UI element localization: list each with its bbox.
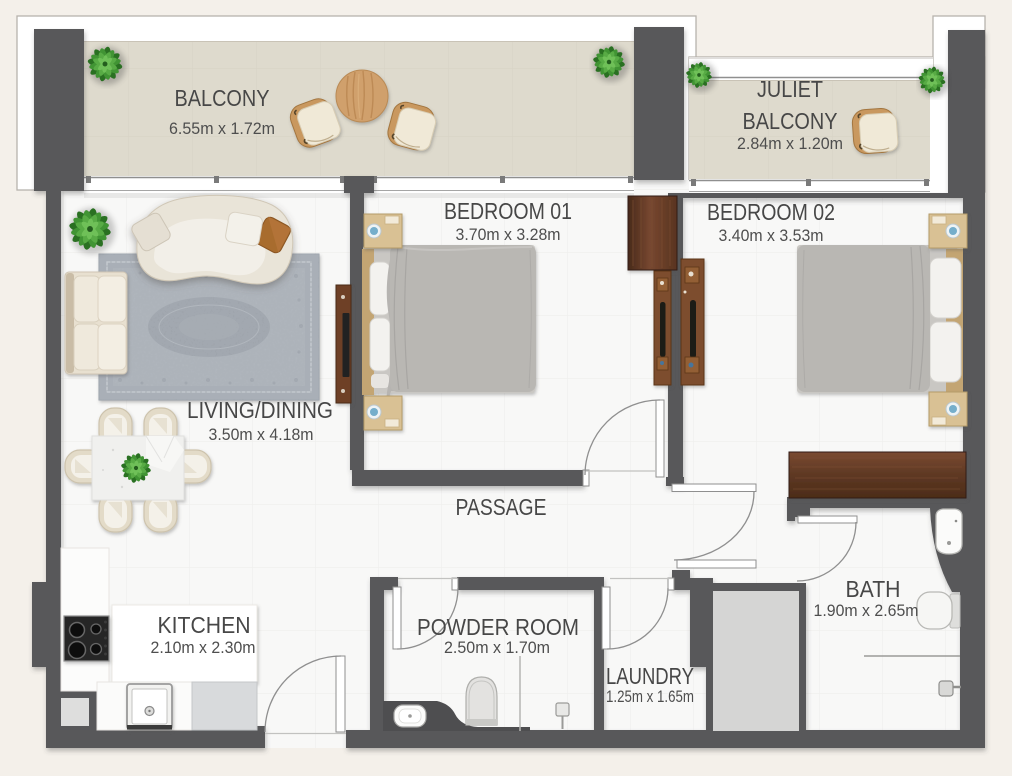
svg-text:KITCHEN: KITCHEN	[158, 612, 251, 638]
svg-text:3.70m x 3.28m: 3.70m x 3.28m	[456, 225, 561, 244]
svg-text:2.84m x 1.20m: 2.84m x 1.20m	[737, 134, 843, 153]
svg-text:BALCONY: BALCONY	[743, 108, 838, 134]
svg-text:JULIET: JULIET	[757, 76, 823, 102]
svg-text:BALCONY: BALCONY	[175, 85, 270, 111]
svg-text:POWDER ROOM: POWDER ROOM	[417, 614, 579, 640]
svg-text:2.50m x 1.70m: 2.50m x 1.70m	[444, 638, 550, 657]
svg-text:3.40m x 3.53m: 3.40m x 3.53m	[719, 226, 824, 245]
svg-text:3.50m x 4.18m: 3.50m x 4.18m	[209, 425, 314, 444]
svg-text:1.90m x 2.65m: 1.90m x 2.65m	[814, 601, 919, 620]
svg-text:LAUNDRY: LAUNDRY	[606, 663, 694, 689]
svg-text:BEDROOM 02: BEDROOM 02	[707, 199, 835, 225]
svg-text:BATH: BATH	[846, 576, 901, 602]
svg-text:LIVING/DINING: LIVING/DINING	[187, 397, 333, 423]
svg-text:6.55m x 1.72m: 6.55m x 1.72m	[169, 119, 275, 138]
svg-text:2.10m x 2.30m: 2.10m x 2.30m	[151, 638, 256, 657]
svg-text:BEDROOM 01: BEDROOM 01	[444, 198, 572, 224]
svg-text:1.25m x 1.65m: 1.25m x 1.65m	[606, 687, 694, 706]
svg-text:PASSAGE: PASSAGE	[456, 494, 547, 520]
